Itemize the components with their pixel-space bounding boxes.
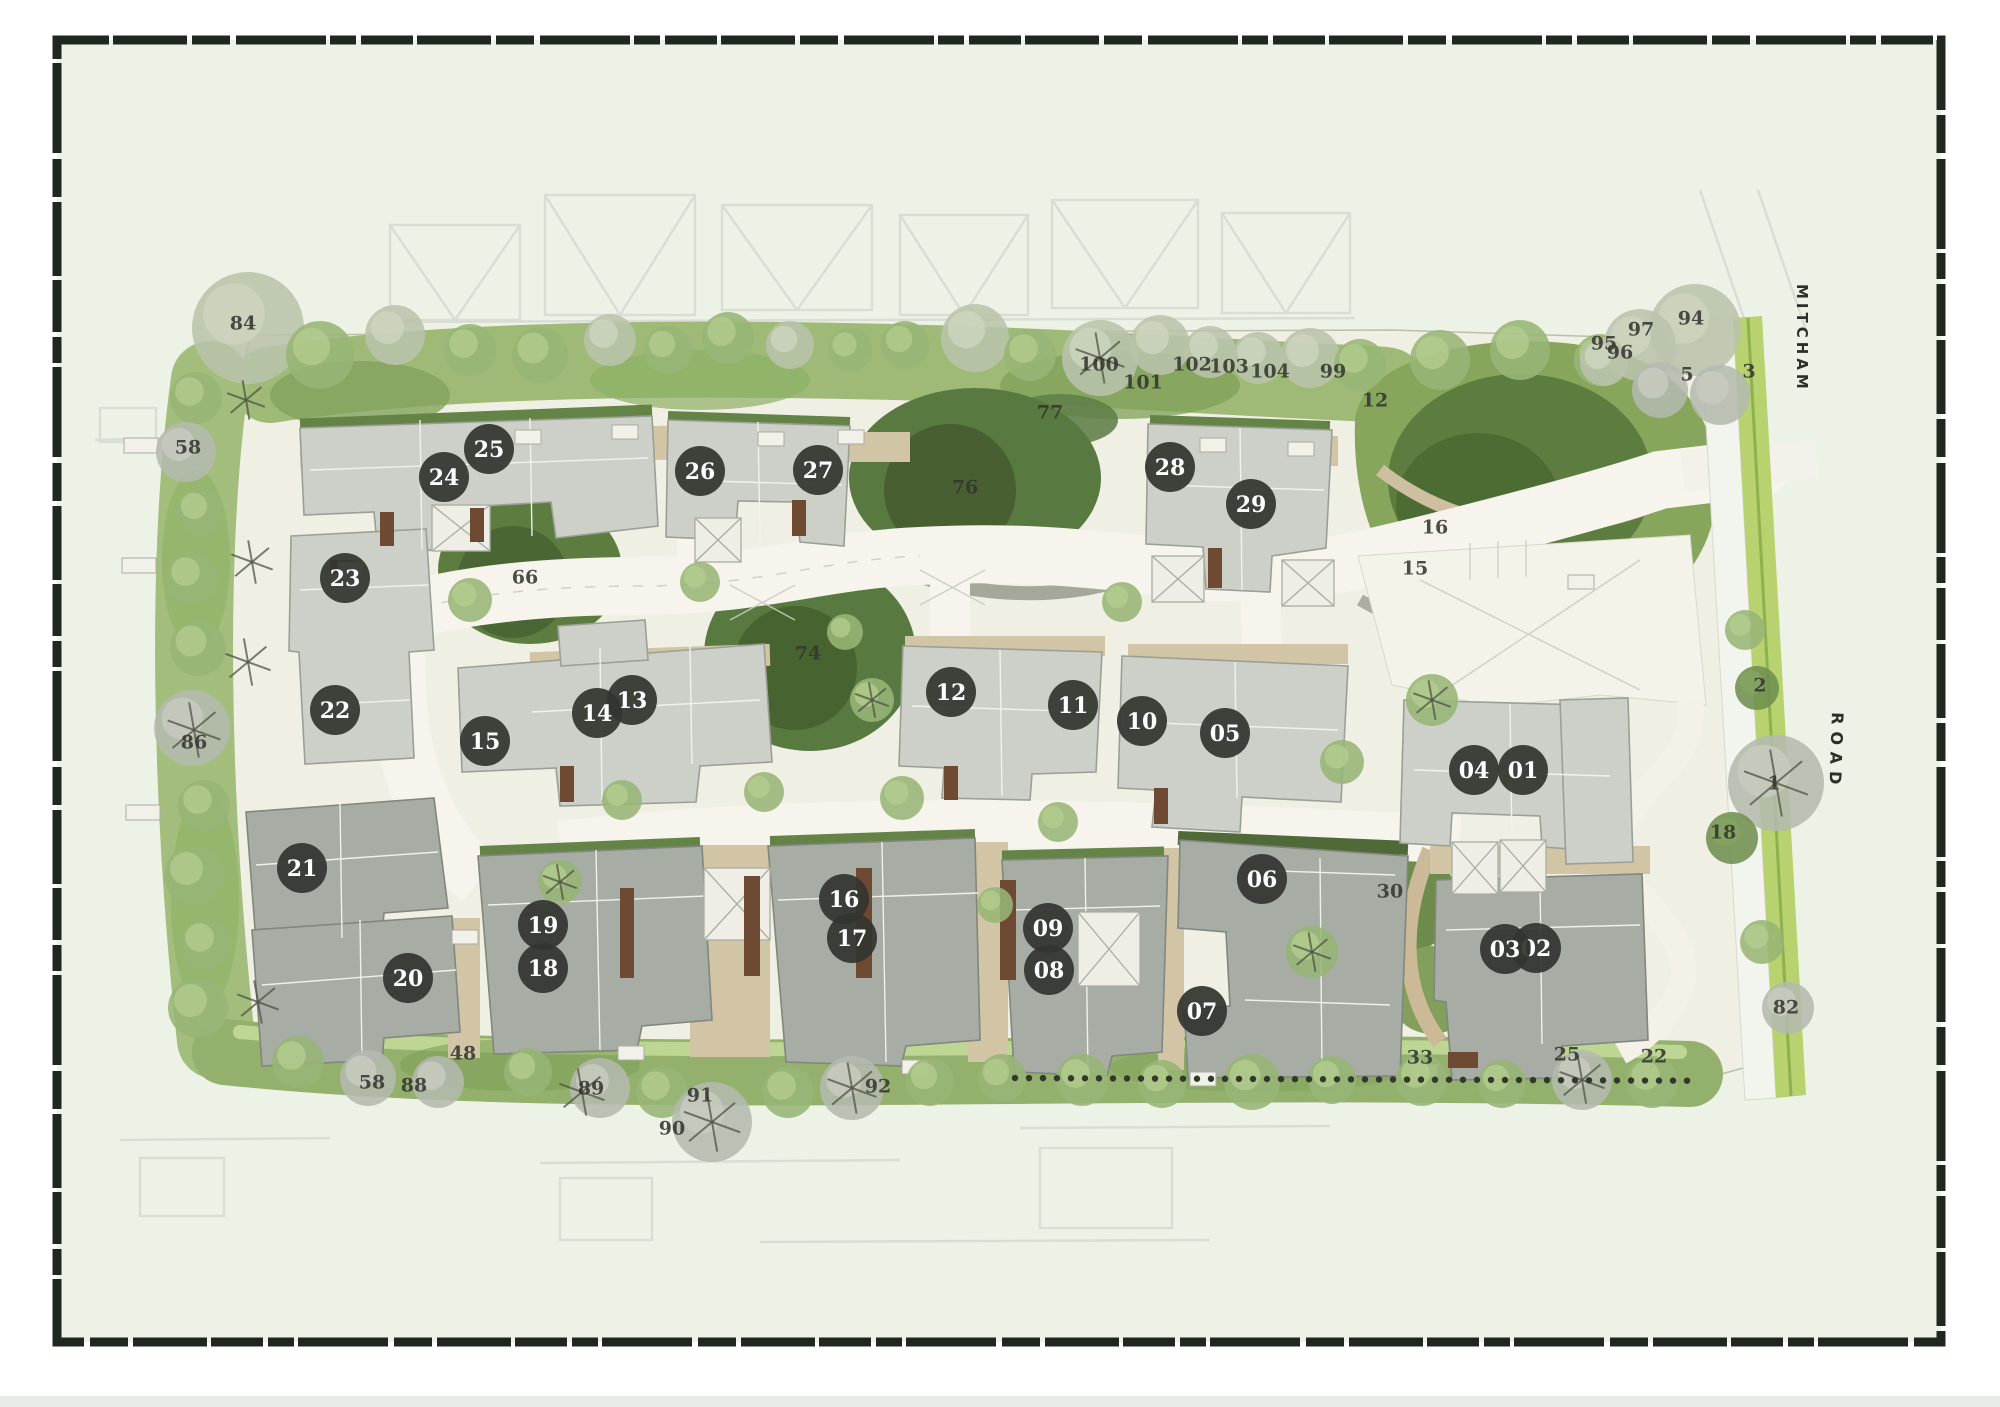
plot-badge-26[interactable]: 26 xyxy=(675,446,725,496)
svg-text:23: 23 xyxy=(330,566,361,592)
landscape-label-84: 84 xyxy=(230,313,256,335)
svg-text:09: 09 xyxy=(1033,916,1064,942)
svg-text:28: 28 xyxy=(1155,455,1186,481)
landscape-label-90: 90 xyxy=(659,1118,685,1140)
plot-badge-20[interactable]: 20 xyxy=(383,953,433,1003)
plot-badge-25[interactable]: 25 xyxy=(464,424,514,474)
landscape-label-48: 48 xyxy=(450,1043,476,1065)
landscape-label-102: 102 xyxy=(1172,354,1212,376)
svg-text:29: 29 xyxy=(1236,492,1267,518)
landscape-label-101: 101 xyxy=(1123,372,1163,394)
svg-text:25: 25 xyxy=(474,437,505,463)
plot-badge-07[interactable]: 07 xyxy=(1177,986,1227,1036)
svg-text:01: 01 xyxy=(1508,758,1539,784)
landscape-label-103: 103 xyxy=(1209,356,1249,378)
plot-badge-05[interactable]: 05 xyxy=(1200,708,1250,758)
plot-badge-06[interactable]: 06 xyxy=(1237,854,1287,904)
landscape-label-22: 22 xyxy=(1641,1046,1667,1068)
landscape-label-104: 104 xyxy=(1250,361,1290,383)
svg-text:26: 26 xyxy=(685,459,716,485)
landscape-label-99: 99 xyxy=(1320,361,1346,383)
plot-badge-15[interactable]: 15 xyxy=(460,716,510,766)
svg-text:05: 05 xyxy=(1210,721,1241,747)
landscape-label-12: 12 xyxy=(1362,390,1388,412)
plot-badge-17[interactable]: 17 xyxy=(827,913,877,963)
landscape-label-18: 18 xyxy=(1710,822,1736,844)
plot-badge-10[interactable]: 10 xyxy=(1117,696,1167,746)
bottom-strip xyxy=(0,1396,2000,1407)
landscape-label-96: 96 xyxy=(1607,342,1633,364)
plot-badge-04[interactable]: 04 xyxy=(1449,745,1499,795)
landscape-label-76: 76 xyxy=(952,477,978,499)
plot-badge-22[interactable]: 22 xyxy=(310,685,360,735)
landscape-label-77: 77 xyxy=(1037,402,1063,424)
street-name-mitcham: MITCHAM xyxy=(1793,284,1811,393)
svg-text:10: 10 xyxy=(1127,709,1158,735)
svg-text:04: 04 xyxy=(1459,758,1490,784)
svg-text:07: 07 xyxy=(1187,999,1218,1025)
svg-text:08: 08 xyxy=(1034,958,1065,984)
plot-badge-12[interactable]: 12 xyxy=(926,667,976,717)
svg-text:20: 20 xyxy=(393,966,424,992)
svg-text:24: 24 xyxy=(429,465,460,491)
landscape-label-5: 5 xyxy=(1680,364,1693,386)
svg-text:15: 15 xyxy=(470,729,501,755)
svg-text:06: 06 xyxy=(1247,867,1278,893)
site-plan-image: 0102030405060708091011121314151617181920… xyxy=(0,0,2000,1407)
plot-badge-27[interactable]: 27 xyxy=(793,445,843,495)
landscape-label-91: 91 xyxy=(687,1085,713,1107)
plot-badge-23[interactable]: 23 xyxy=(320,553,370,603)
landscape-label-15: 15 xyxy=(1402,558,1428,580)
svg-text:18: 18 xyxy=(528,956,559,982)
plot-badge-09[interactable]: 09 xyxy=(1023,903,1073,953)
plot-badge-18[interactable]: 18 xyxy=(518,943,568,993)
plot-badge-21[interactable]: 21 xyxy=(277,843,327,893)
plot-badge-29[interactable]: 29 xyxy=(1226,479,1276,529)
landscape-label-58: 58 xyxy=(359,1072,385,1094)
svg-text:03: 03 xyxy=(1490,937,1521,963)
street-name-road: ROAD xyxy=(1825,712,1847,792)
landscape-label-33: 33 xyxy=(1407,1047,1433,1069)
svg-text:17: 17 xyxy=(837,926,868,952)
plot-badge-24[interactable]: 24 xyxy=(419,452,469,502)
landscape-label-2: 2 xyxy=(1753,675,1766,697)
svg-text:22: 22 xyxy=(320,698,351,724)
landscape-label-88: 88 xyxy=(401,1075,427,1097)
landscape-label-66: 66 xyxy=(512,567,538,589)
landscape-label-58: 58 xyxy=(175,437,201,459)
svg-text:19: 19 xyxy=(528,913,559,939)
svg-text:14: 14 xyxy=(582,701,613,727)
plot-badge-01[interactable]: 01 xyxy=(1498,745,1548,795)
landscape-label-25: 25 xyxy=(1554,1044,1580,1066)
landscape-label-97: 97 xyxy=(1628,319,1654,341)
landscape-label-86: 86 xyxy=(181,732,207,754)
plot-badge-28[interactable]: 28 xyxy=(1145,442,1195,492)
landscape-label-1: 1 xyxy=(1767,773,1780,795)
landscape-label-94: 94 xyxy=(1678,308,1704,330)
svg-text:11: 11 xyxy=(1058,693,1089,719)
svg-text:16: 16 xyxy=(829,887,860,913)
landscape-label-100: 100 xyxy=(1079,354,1119,376)
landscape-label-3: 3 xyxy=(1742,361,1755,383)
landscape-label-30: 30 xyxy=(1377,881,1403,903)
landscape-label-74: 74 xyxy=(795,643,821,665)
plot-badge-19[interactable]: 19 xyxy=(518,900,568,950)
landscape-label-92: 92 xyxy=(865,1076,891,1098)
plot-badge-11[interactable]: 11 xyxy=(1048,680,1098,730)
svg-text:21: 21 xyxy=(287,856,318,882)
landscape-label-89: 89 xyxy=(578,1078,604,1100)
plot-badge-03[interactable]: 03 xyxy=(1480,924,1530,974)
landscape-label-82: 82 xyxy=(1773,997,1799,1019)
plot-badge-14[interactable]: 14 xyxy=(572,688,622,738)
landscape-label-16: 16 xyxy=(1422,517,1448,539)
svg-text:27: 27 xyxy=(803,458,834,484)
site-plan-page: 0102030405060708091011121314151617181920… xyxy=(0,0,2000,1407)
svg-text:12: 12 xyxy=(936,680,967,706)
